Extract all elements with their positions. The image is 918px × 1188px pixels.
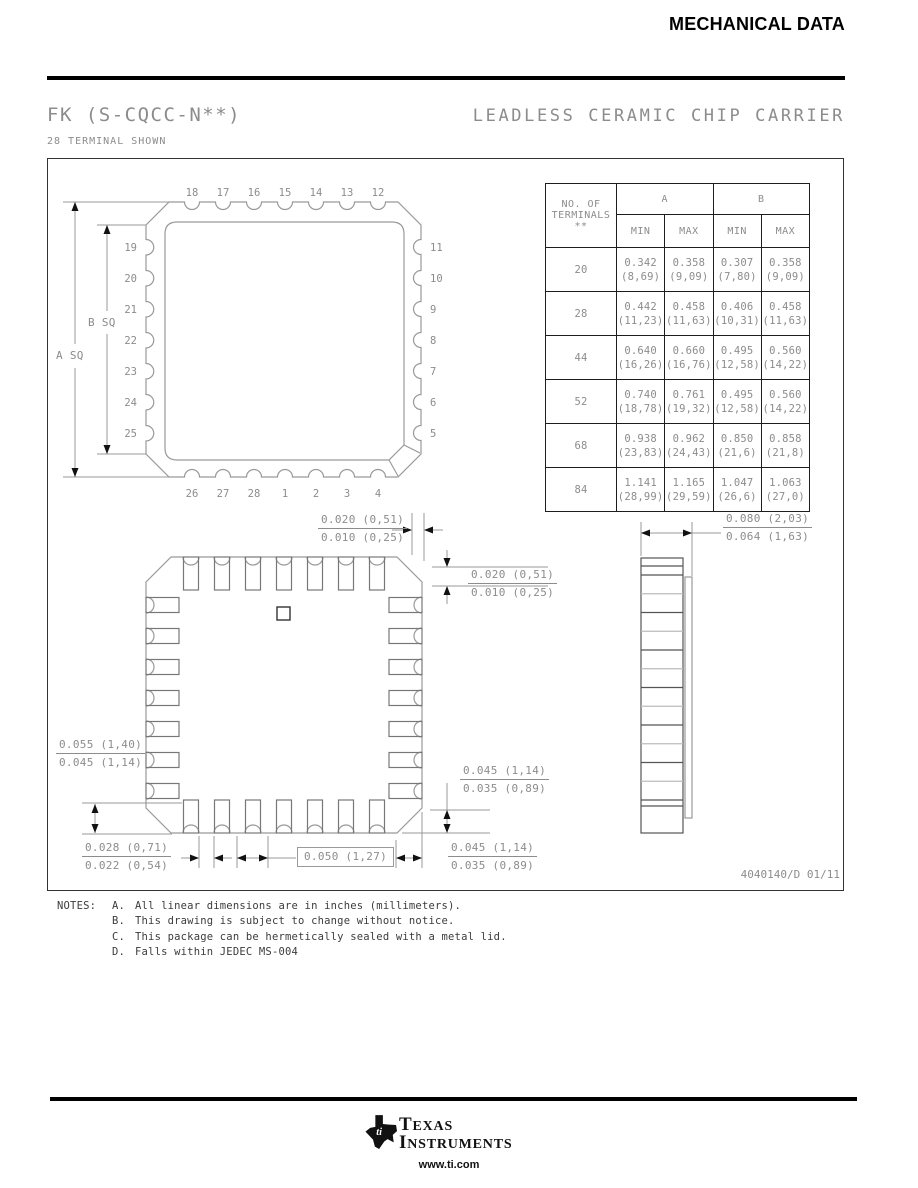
dim-max: 0.020 (0,51) — [318, 513, 407, 529]
note-text: This package can be hermetically sealed … — [135, 931, 507, 943]
cell-terminal-count: 68 — [546, 424, 617, 468]
col-subheader: MAX — [665, 215, 713, 248]
note-text: All linear dimensions are in inches (mil… — [135, 900, 461, 912]
header-rule — [47, 76, 845, 80]
cell-dimension: 1.165(29,59) — [665, 468, 713, 512]
table-row: 200.342(8,69)0.358(9,09)0.307(7,80)0.358… — [546, 248, 810, 292]
page-title: MECHANICAL DATA — [669, 14, 845, 35]
dim-left-height: 0.055 (1,40) 0.045 (1,14) — [56, 738, 145, 769]
table-header: NO. OFTERMINALS**ABMINMAXMINMAX — [546, 184, 810, 248]
cell-dimension: 1.063(27,0) — [761, 468, 809, 512]
cell-terminal-count: 44 — [546, 336, 617, 380]
dim-pitch: 0.050 (1,27) — [297, 847, 394, 867]
dim-thickness: 0.080 (2,03) 0.064 (1,63) — [723, 512, 812, 543]
cell-terminal-count: 84 — [546, 468, 617, 512]
cell-dimension: 0.962(24,43) — [665, 424, 713, 468]
brand-texas: TEXAS — [399, 1117, 512, 1135]
dim-min: 0.022 (0,54) — [82, 857, 171, 872]
cell-dimension: 0.560(14,22) — [761, 336, 809, 380]
dim-top-gap: 0.020 (0,51) 0.010 (0,25) — [318, 513, 407, 544]
cell-dimension: 0.495(12,58) — [713, 336, 761, 380]
ti-texas-logo-icon: ti — [365, 1113, 397, 1153]
cell-dimension: 0.850(21,6) — [713, 424, 761, 468]
cell-dimension: 0.560(14,22) — [761, 380, 809, 424]
notes-block: NOTES: A.All linear dimensions are in in… — [57, 899, 507, 961]
cell-dimension: 0.442(11,23) — [617, 292, 665, 336]
cell-dimension: 0.342(8,69) — [617, 248, 665, 292]
note-key: C. — [112, 930, 135, 945]
col-subheader: MAX — [761, 215, 809, 248]
cell-terminal-count: 52 — [546, 380, 617, 424]
document-number: 4040140/D 01/11 — [700, 868, 840, 881]
table-row: 680.938(23,83)0.962(24,43)0.850(21,6)0.8… — [546, 424, 810, 468]
notes-label: NOTES: — [57, 899, 112, 961]
note-key: A. — [112, 899, 135, 914]
package-subtitle: 28 TERMINAL SHOWN — [47, 136, 166, 147]
dim-max: 0.028 (0,71) — [82, 841, 171, 857]
col-group-b: B — [713, 184, 810, 215]
table-row: 440.640(16,26)0.660(16,76)0.495(12,58)0.… — [546, 336, 810, 380]
cell-dimension: 0.358(9,09) — [665, 248, 713, 292]
col-subheader: MIN — [617, 215, 665, 248]
dim-right-gap: 0.020 (0,51) 0.010 (0,25) — [468, 568, 557, 599]
dim-min: 0.035 (0,89) — [460, 780, 549, 795]
col-subheader: MIN — [713, 215, 761, 248]
col-header-terminals: NO. OFTERMINALS** — [546, 184, 617, 248]
dim-max: 0.045 (1,14) — [460, 764, 549, 780]
dim-min: 0.045 (1,14) — [56, 754, 145, 769]
cell-dimension: 0.406(10,31) — [713, 292, 761, 336]
note-text: This drawing is subject to change withou… — [135, 915, 455, 927]
dim-max: 0.020 (0,51) — [468, 568, 557, 584]
note-key: D. — [112, 945, 135, 960]
cell-dimension: 0.458(11,63) — [665, 292, 713, 336]
datasheet-page: { "header": { "title": "MECHANICAL DATA"… — [0, 0, 918, 1188]
dim-b-sq-label: B SQ — [88, 315, 116, 330]
brand-instruments: INSTRUMENTS — [399, 1135, 512, 1153]
dim-max: 0.080 (2,03) — [723, 512, 812, 528]
note-item: A.All linear dimensions are in inches (m… — [112, 899, 507, 914]
dim-max: 0.055 (1,40) — [56, 738, 145, 754]
dim-corner-height: 0.045 (1,14) 0.035 (0,89) — [460, 764, 549, 795]
dim-min: 0.010 (0,25) — [468, 584, 557, 599]
cell-dimension: 1.047(26,6) — [713, 468, 761, 512]
ti-monogram: ti — [376, 1127, 382, 1138]
cell-dimension: 1.141(28,99) — [617, 468, 665, 512]
dim-min: 0.064 (1,63) — [723, 528, 812, 543]
notes-items: A.All linear dimensions are in inches (m… — [112, 899, 507, 961]
note-key: B. — [112, 914, 135, 929]
dim-a-sq-label: A SQ — [56, 348, 84, 363]
cell-dimension: 0.740(18,78) — [617, 380, 665, 424]
terminals-dimension-table: NO. OFTERMINALS**ABMINMAXMINMAX 200.342(… — [545, 183, 810, 512]
note-text: Falls within JEDEC MS-004 — [135, 946, 298, 958]
cell-dimension: 0.307(7,80) — [713, 248, 761, 292]
footer-rule — [50, 1097, 857, 1101]
brand-wordmark: TEXAS INSTRUMENTS — [399, 1117, 512, 1153]
cell-dimension: 0.495(12,58) — [713, 380, 761, 424]
note-item: D.Falls within JEDEC MS-004 — [112, 945, 507, 960]
table-row: 841.141(28,99)1.165(29,59)1.047(26,6)1.0… — [546, 468, 810, 512]
table-row: 280.442(11,23)0.458(11,63)0.406(10,31)0.… — [546, 292, 810, 336]
dim-corner-width: 0.045 (1,14) 0.035 (0,89) — [448, 841, 537, 872]
note-item: B.This drawing is subject to change with… — [112, 914, 507, 929]
cell-dimension: 0.358(9,09) — [761, 248, 809, 292]
cell-terminal-count: 20 — [546, 248, 617, 292]
table-row: 520.740(18,78)0.761(19,32)0.495(12,58)0.… — [546, 380, 810, 424]
col-group-a: A — [617, 184, 714, 215]
dim-min: 0.010 (0,25) — [318, 529, 407, 544]
cell-dimension: 0.858(21,8) — [761, 424, 809, 468]
cell-dimension: 0.660(16,76) — [665, 336, 713, 380]
dim-max: 0.045 (1,14) — [448, 841, 537, 857]
package-code: FK (S-CQCC-N**) — [47, 104, 241, 126]
package-type: LEADLESS CERAMIC CHIP CARRIER — [473, 106, 845, 126]
table-body: 200.342(8,69)0.358(9,09)0.307(7,80)0.358… — [546, 248, 810, 512]
dim-min: 0.035 (0,89) — [448, 857, 537, 872]
dim-castellation-width: 0.028 (0,71) 0.022 (0,54) — [82, 841, 171, 872]
note-item: C.This package can be hermetically seale… — [112, 930, 507, 945]
cell-terminal-count: 28 — [546, 292, 617, 336]
website-url[interactable]: www.ti.com — [404, 1159, 494, 1171]
cell-dimension: 0.640(16,26) — [617, 336, 665, 380]
cell-dimension: 0.938(23,83) — [617, 424, 665, 468]
cell-dimension: 0.458(11,63) — [761, 292, 809, 336]
cell-dimension: 0.761(19,32) — [665, 380, 713, 424]
